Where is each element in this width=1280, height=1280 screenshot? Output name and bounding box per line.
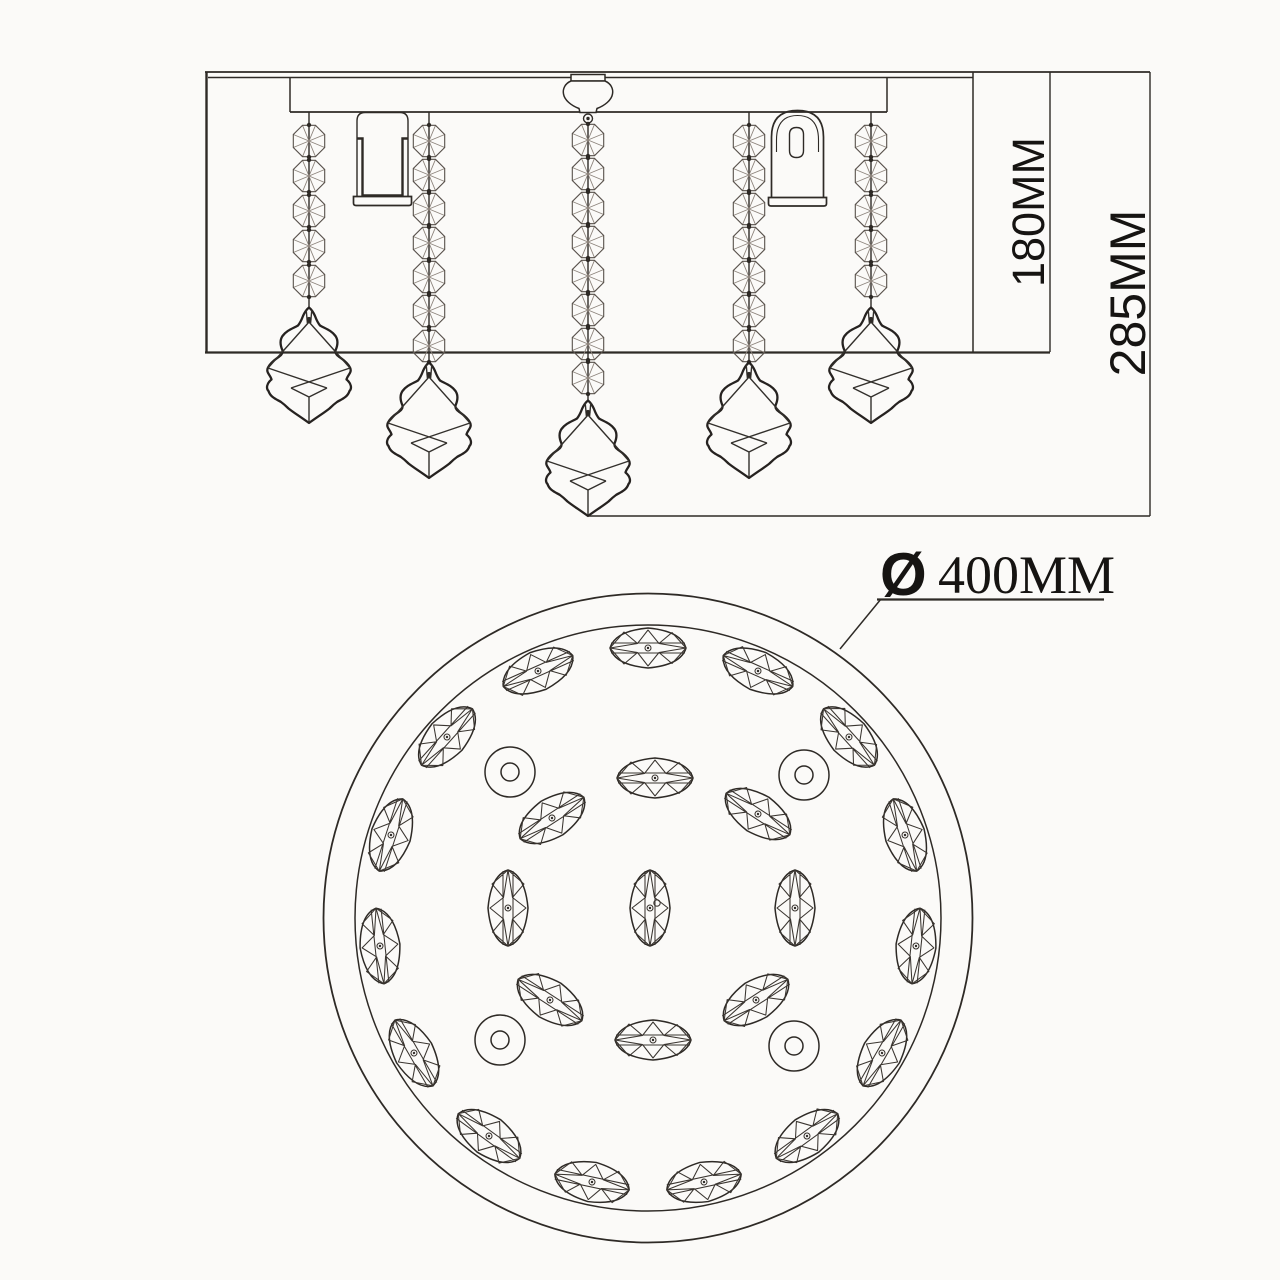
bulb-slot <box>790 128 804 158</box>
oval-crystal <box>775 870 815 946</box>
oval-crystal <box>488 870 528 946</box>
oval-crystal <box>765 1097 850 1174</box>
rim-circle <box>324 594 973 1243</box>
crystal-pendant <box>546 401 630 517</box>
diameter-value: 400MM <box>938 545 1115 605</box>
screw-washer <box>475 1015 525 1065</box>
crystal-pendant <box>387 363 471 479</box>
height-180-label: 180MM <box>1003 137 1054 287</box>
leader-line <box>840 599 881 649</box>
dimension-180: 180MM <box>1003 72 1054 352</box>
oval-crystal <box>617 758 693 798</box>
screw-washer <box>485 747 535 797</box>
technical-drawing: 180MM 285MM <box>0 0 1280 1280</box>
oval-crystal <box>715 777 801 852</box>
oval-crystal <box>447 1097 532 1174</box>
oval-crystal <box>615 1020 691 1060</box>
oval-crystal <box>360 793 422 878</box>
oval-crystal <box>715 637 801 704</box>
oval-crystal <box>713 963 799 1038</box>
bottom-view <box>324 594 973 1243</box>
dimension-line-285 <box>589 72 1150 516</box>
crystal-pendant <box>829 308 913 424</box>
diameter-symbol: Ø <box>880 541 927 608</box>
halogen-bulb <box>769 111 827 207</box>
height-285-label: 285MM <box>1100 210 1156 377</box>
screw-washer <box>769 1021 819 1071</box>
oval-crystal <box>809 695 890 778</box>
lamp-socket <box>354 113 412 206</box>
oval-crystal <box>892 906 940 986</box>
drawing-canvas: 180MM 285MM <box>0 0 1280 1280</box>
crystal-pendant <box>267 308 351 424</box>
oval-crystal <box>407 695 488 778</box>
diameter-callout: Ø 400MM <box>840 541 1115 649</box>
oval-crystal <box>551 1155 634 1210</box>
oval-crystal <box>630 870 670 946</box>
inner-rim-circle <box>355 625 941 1211</box>
oval-crystal <box>663 1155 746 1210</box>
canopy <box>563 75 612 124</box>
screw-washer <box>779 750 829 800</box>
oval-crystal <box>356 906 404 986</box>
oval-crystal <box>509 781 595 856</box>
oval-crystal <box>495 637 581 704</box>
dimension-285: 285MM <box>589 72 1156 516</box>
crystal-pendant <box>707 363 791 479</box>
oval-crystal <box>610 628 686 668</box>
oval-crystal <box>874 793 936 878</box>
